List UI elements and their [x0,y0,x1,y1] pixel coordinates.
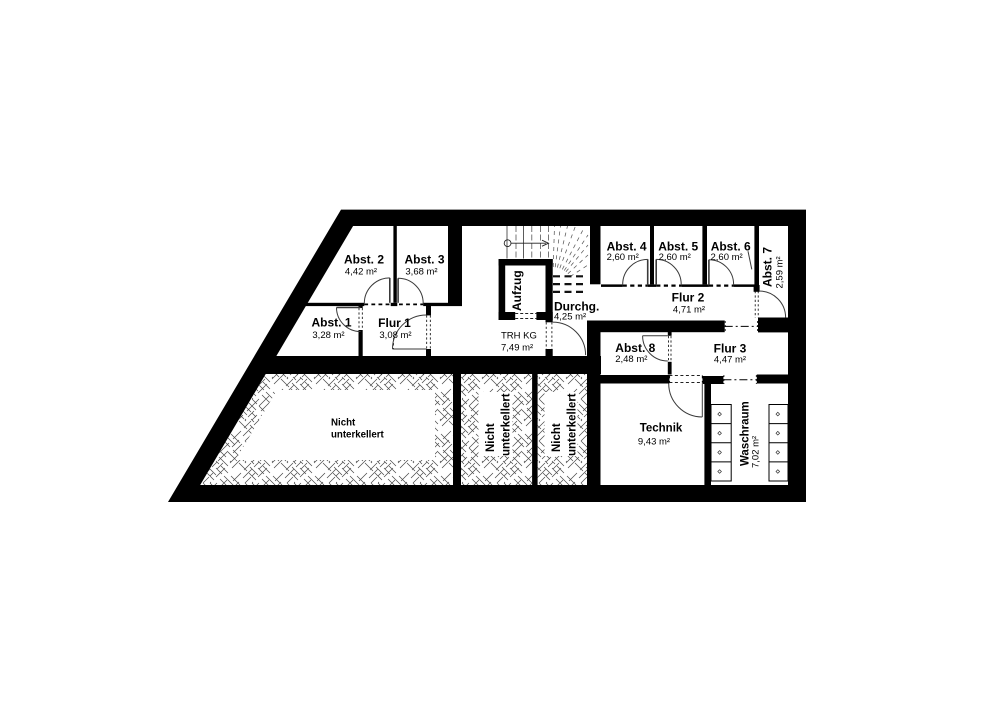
svg-text:Abst. 4: Abst. 4 [607,239,647,253]
svg-text:unterkellert: unterkellert [567,393,579,456]
svg-text:3,08 m²: 3,08 m² [379,330,411,341]
svg-text:unterkellert: unterkellert [501,393,513,456]
svg-text:Abst. 8: Abst. 8 [615,341,655,355]
svg-text:4,42 m²: 4,42 m² [345,267,377,278]
svg-text:Aufzug: Aufzug [510,270,524,311]
svg-text:2,60 m²: 2,60 m² [710,252,742,263]
svg-text:Abst. 6: Abst. 6 [711,239,751,253]
svg-text:Waschraum: Waschraum [740,401,752,466]
svg-text:Abst. 7: Abst. 7 [761,247,775,287]
svg-text:7,49 m²: 7,49 m² [501,343,533,354]
svg-text:9,43 m²: 9,43 m² [638,437,670,448]
svg-text:Technik: Technik [640,423,683,435]
svg-text:Abst. 2: Abst. 2 [344,253,384,267]
svg-text:4,25 m²: 4,25 m² [554,311,586,322]
svg-text:2,59 m²: 2,59 m² [775,256,786,288]
svg-text:Abst. 1: Abst. 1 [311,316,351,330]
svg-text:Flur 1: Flur 1 [378,316,411,330]
svg-text:3,68 m²: 3,68 m² [405,267,437,278]
svg-text:Abst. 3: Abst. 3 [404,253,444,267]
svg-text:Nicht: Nicht [485,423,497,452]
svg-text:3,28 m²: 3,28 m² [312,330,344,341]
svg-text:Flur 3: Flur 3 [714,341,747,355]
svg-text:Flur 2: Flur 2 [672,291,705,305]
svg-text:4,47 m²: 4,47 m² [714,355,746,366]
svg-text:Nicht: Nicht [331,417,356,428]
svg-text:2,60 m²: 2,60 m² [659,252,691,263]
svg-text:2,48 m²: 2,48 m² [615,354,647,365]
svg-text:Nicht: Nicht [551,423,563,452]
svg-text:Abst. 5: Abst. 5 [658,239,698,253]
svg-text:unterkellert: unterkellert [331,429,385,440]
svg-text:7,02 m²: 7,02 m² [751,436,762,468]
svg-text:2,60 m²: 2,60 m² [607,252,639,263]
svg-text:TRH KG: TRH KG [501,331,537,342]
svg-text:4,71 m²: 4,71 m² [673,304,705,315]
